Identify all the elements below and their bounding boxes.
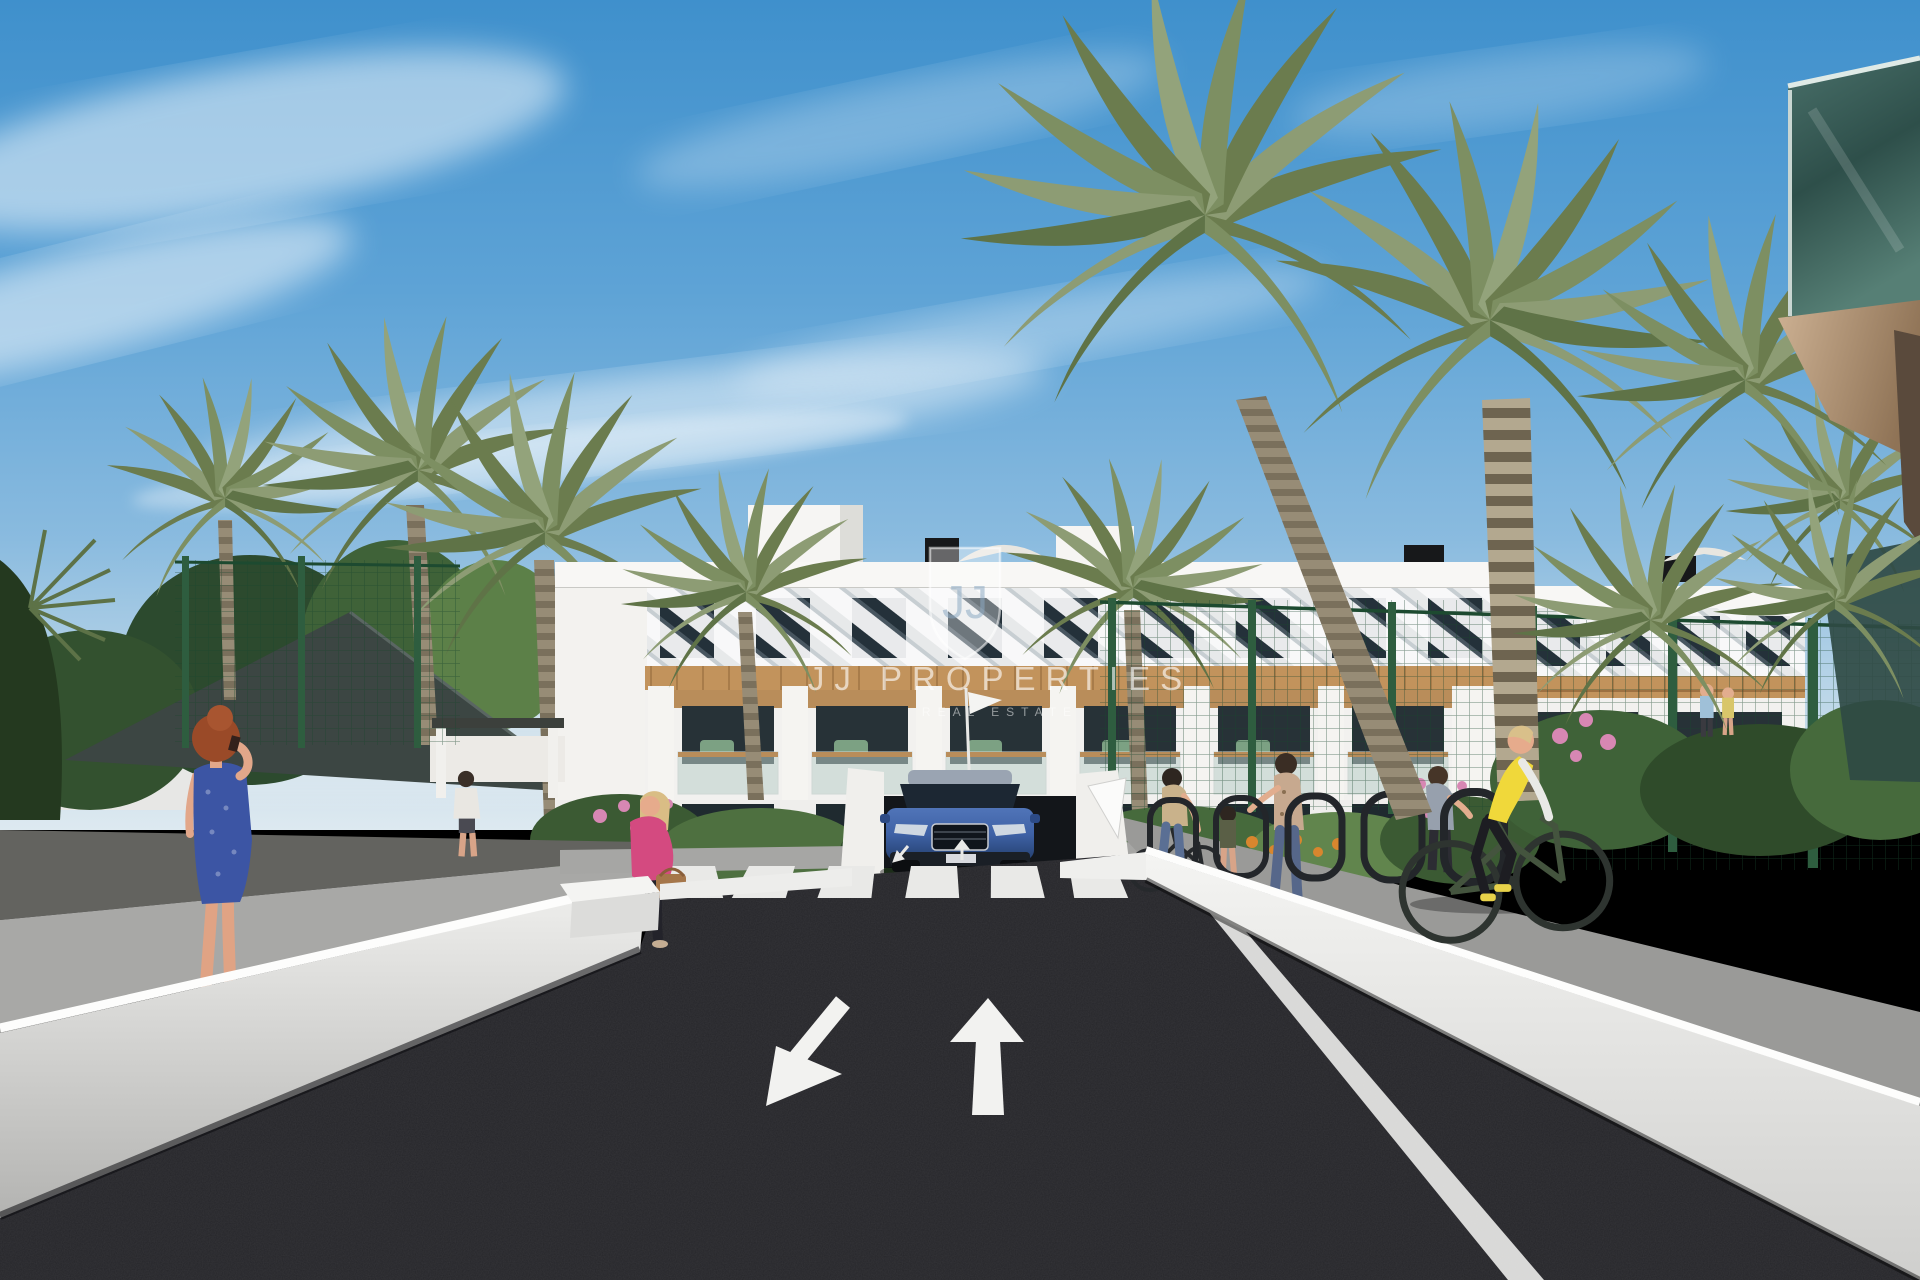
- watermark-subtitle: REAL ESTATE: [922, 705, 1078, 719]
- watermark-title: JJ PROPERTIES: [808, 660, 1192, 697]
- glass-balcony: [1788, 58, 1920, 318]
- render-canvas: JJ JJ PROPERTIES REAL ESTATE: [0, 0, 1920, 1280]
- watermark-monogram: JJ: [942, 576, 988, 628]
- architectural-render-scene: JJ JJ PROPERTIES REAL ESTATE: [0, 0, 1920, 1280]
